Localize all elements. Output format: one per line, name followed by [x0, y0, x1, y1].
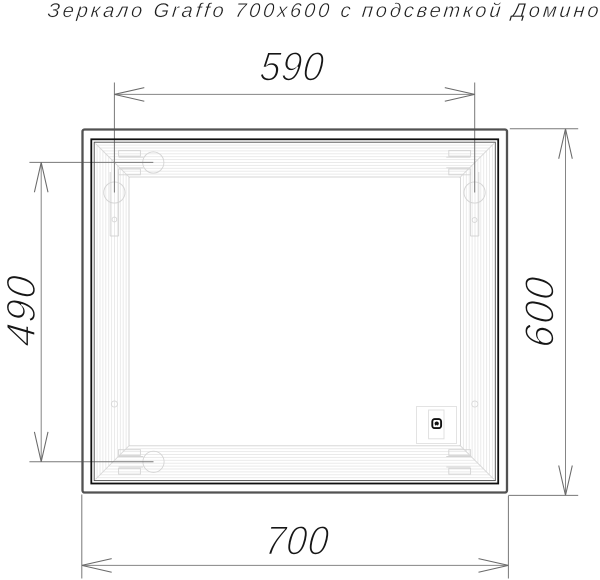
svg-text:600: 600	[516, 273, 562, 349]
svg-text:490: 490	[0, 272, 44, 348]
svg-text:700: 700	[263, 519, 332, 564]
svg-text:590: 590	[258, 45, 327, 90]
